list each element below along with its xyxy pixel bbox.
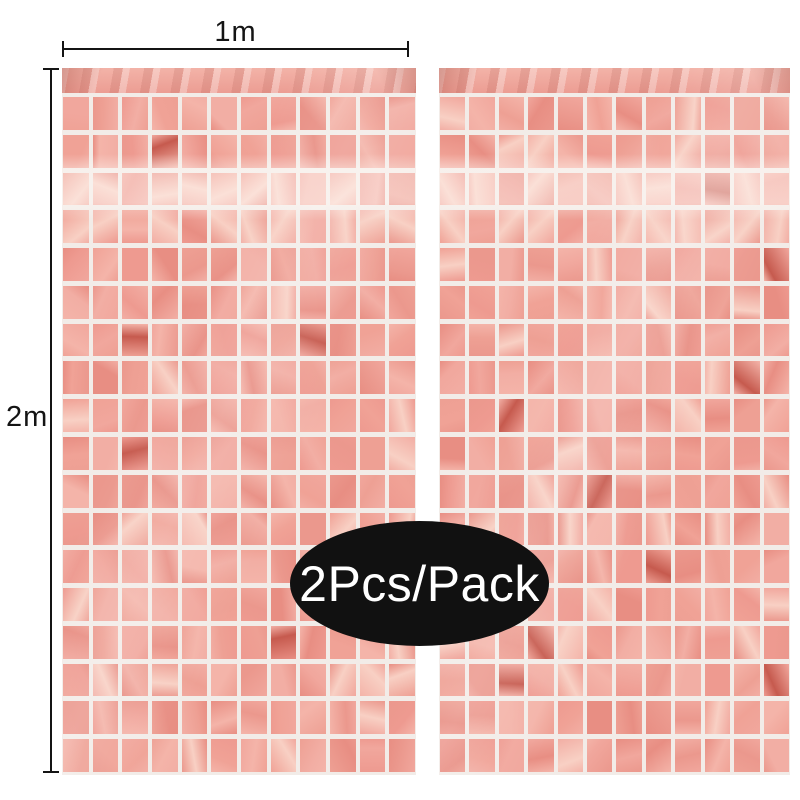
foil-cell	[271, 475, 297, 508]
foil-cell	[152, 664, 178, 697]
foil-cell	[63, 210, 89, 243]
foil-cell	[675, 588, 700, 621]
foil-cell	[440, 248, 465, 281]
foil-cell	[63, 248, 89, 281]
foil-cell	[616, 399, 641, 432]
foil-cell	[122, 97, 148, 130]
foil-cell	[469, 361, 494, 394]
foil-cell	[182, 173, 208, 206]
foil-cell	[389, 475, 415, 508]
foil-cell	[182, 475, 208, 508]
foil-cell	[499, 475, 524, 508]
foil-cell	[646, 475, 671, 508]
foil-cell	[499, 286, 524, 319]
width-dimension-line	[62, 48, 409, 50]
foil-cell	[211, 664, 237, 697]
foil-cell	[764, 437, 789, 470]
foil-cell	[675, 513, 700, 546]
foil-cell	[558, 173, 583, 206]
foil-cell	[764, 399, 789, 432]
foil-cell	[675, 437, 700, 470]
foil-cell	[616, 286, 641, 319]
foil-cell	[469, 324, 494, 357]
foil-cell	[440, 210, 465, 243]
foil-cell	[499, 173, 524, 206]
foil-cell	[469, 135, 494, 168]
foil-cell	[734, 513, 759, 546]
foil-cell	[587, 324, 612, 357]
foil-cell	[211, 173, 237, 206]
foil-cell	[705, 361, 730, 394]
foil-cell	[764, 173, 789, 206]
foil-cell	[616, 324, 641, 357]
foil-cell	[528, 248, 553, 281]
foil-cell	[705, 324, 730, 357]
foil-cell	[764, 513, 789, 546]
foil-cell	[705, 210, 730, 243]
foil-cell	[360, 399, 386, 432]
foil-cell	[499, 664, 524, 697]
foil-cell	[469, 475, 494, 508]
foil-cell	[705, 399, 730, 432]
foil-cell	[499, 701, 524, 734]
foil-cell	[122, 286, 148, 319]
foil-cell	[469, 286, 494, 319]
foil-cell	[528, 626, 553, 659]
foil-cell	[330, 475, 356, 508]
foil-cell	[122, 324, 148, 357]
foil-cell	[764, 475, 789, 508]
foil-cell	[122, 626, 148, 659]
foil-cell	[330, 739, 356, 772]
foil-cell	[271, 248, 297, 281]
foil-cell	[360, 701, 386, 734]
foil-cell	[300, 324, 326, 357]
foil-cell	[646, 513, 671, 546]
foil-cell	[360, 173, 386, 206]
foil-cell	[152, 210, 178, 243]
foil-cell	[440, 701, 465, 734]
foil-cell	[241, 361, 267, 394]
foil-cell	[764, 626, 789, 659]
foil-cell	[558, 210, 583, 243]
foil-cell	[558, 588, 583, 621]
foil-cell	[271, 437, 297, 470]
foil-cell	[705, 135, 730, 168]
foil-cell	[360, 361, 386, 394]
foil-cell	[558, 626, 583, 659]
foil-cell	[558, 135, 583, 168]
foil-cell	[499, 437, 524, 470]
width-dimension-label: 1m	[62, 16, 409, 49]
foil-cell	[360, 210, 386, 243]
foil-cell	[389, 135, 415, 168]
foil-cell	[499, 739, 524, 772]
foil-cell	[616, 475, 641, 508]
foil-cell	[528, 97, 553, 130]
foil-cell	[646, 324, 671, 357]
foil-cell	[330, 97, 356, 130]
foil-cell	[389, 739, 415, 772]
foil-cell	[360, 437, 386, 470]
foil-cell	[764, 248, 789, 281]
foil-cell	[499, 210, 524, 243]
foil-cell	[360, 286, 386, 319]
foil-cell	[152, 475, 178, 508]
foil-cell	[587, 97, 612, 130]
foil-curtain-right	[439, 68, 790, 775]
foil-cell	[63, 475, 89, 508]
foil-cell	[241, 399, 267, 432]
foil-cell	[764, 135, 789, 168]
foil-cell	[587, 664, 612, 697]
foil-cell	[558, 550, 583, 583]
foil-cell	[389, 399, 415, 432]
foil-cell	[734, 664, 759, 697]
foil-cell	[616, 550, 641, 583]
foil-cell	[300, 664, 326, 697]
foil-cell	[705, 739, 730, 772]
foil-cell	[182, 324, 208, 357]
foil-cell	[152, 437, 178, 470]
pack-count-label: 2Pcs/Pack	[299, 555, 540, 613]
foil-cell	[182, 135, 208, 168]
foil-cell	[734, 135, 759, 168]
foil-cell	[271, 513, 297, 546]
foil-cell	[499, 135, 524, 168]
foil-cell	[499, 324, 524, 357]
foil-cell	[469, 701, 494, 734]
foil-cell	[440, 399, 465, 432]
foil-cell	[360, 324, 386, 357]
foil-cell	[675, 475, 700, 508]
foil-cell	[152, 588, 178, 621]
foil-cell	[152, 701, 178, 734]
foil-cell	[211, 97, 237, 130]
foil-cell	[122, 475, 148, 508]
foil-cell	[389, 248, 415, 281]
foil-cell	[764, 210, 789, 243]
foil-cell	[63, 135, 89, 168]
foil-cell	[271, 664, 297, 697]
foil-cell	[646, 361, 671, 394]
foil-cell	[646, 701, 671, 734]
foil-cell	[122, 588, 148, 621]
foil-cell	[300, 97, 326, 130]
foil-cell	[705, 475, 730, 508]
foil-cell	[558, 664, 583, 697]
foil-cell	[241, 664, 267, 697]
foil-cell	[675, 248, 700, 281]
foil-cell	[734, 324, 759, 357]
foil-cell	[587, 550, 612, 583]
foil-cell	[300, 210, 326, 243]
foil-cell	[93, 97, 119, 130]
foil-cell	[93, 248, 119, 281]
foil-cell	[182, 248, 208, 281]
foil-cell	[300, 513, 326, 546]
foil-cell	[330, 286, 356, 319]
foil-cell	[211, 739, 237, 772]
foil-cell	[558, 97, 583, 130]
foil-cell	[93, 286, 119, 319]
foil-cell	[63, 286, 89, 319]
foil-cell	[182, 513, 208, 546]
foil-cell	[558, 286, 583, 319]
foil-cell	[122, 550, 148, 583]
foil-cell	[93, 437, 119, 470]
foil-cell	[241, 513, 267, 546]
foil-cell	[675, 626, 700, 659]
foil-cell	[469, 248, 494, 281]
foil-cell	[63, 626, 89, 659]
foil-cell	[63, 664, 89, 697]
foil-cell	[330, 135, 356, 168]
foil-cell	[675, 324, 700, 357]
foil-cell	[734, 475, 759, 508]
foil-cell	[440, 475, 465, 508]
foil-cell	[152, 626, 178, 659]
foil-cell	[469, 664, 494, 697]
foil-cell	[152, 97, 178, 130]
foil-cell	[528, 739, 553, 772]
foil-cell	[241, 475, 267, 508]
foil-cell	[152, 286, 178, 319]
foil-cell	[528, 701, 553, 734]
foil-cell	[675, 664, 700, 697]
foil-cell	[734, 286, 759, 319]
foil-cell	[330, 210, 356, 243]
foil-cell	[705, 588, 730, 621]
foil-cell	[734, 173, 759, 206]
foil-cell	[705, 97, 730, 130]
foil-cell	[646, 173, 671, 206]
foil-cell	[63, 701, 89, 734]
foil-cell	[152, 248, 178, 281]
foil-cell	[300, 475, 326, 508]
foil-cell	[360, 135, 386, 168]
foil-cell	[764, 739, 789, 772]
foil-cell	[122, 739, 148, 772]
foil-cell	[182, 286, 208, 319]
foil-cell	[646, 739, 671, 772]
foil-cell	[211, 286, 237, 319]
foil-cell	[330, 324, 356, 357]
foil-cell	[389, 324, 415, 357]
foil-cell	[122, 664, 148, 697]
foil-cell	[764, 701, 789, 734]
foil-cell	[646, 399, 671, 432]
foil-cell	[587, 475, 612, 508]
foil-cell	[528, 399, 553, 432]
foil-cell	[152, 550, 178, 583]
foil-cell	[587, 399, 612, 432]
foil-cell	[93, 173, 119, 206]
foil-cell	[587, 361, 612, 394]
foil-cell	[440, 135, 465, 168]
foil-cell	[440, 361, 465, 394]
foil-cell	[271, 626, 297, 659]
foil-cell	[211, 210, 237, 243]
foil-cell	[587, 739, 612, 772]
foil-cell	[182, 739, 208, 772]
foil-cell	[241, 437, 267, 470]
foil-cell	[440, 97, 465, 130]
foil-cell	[152, 513, 178, 546]
foil-cell	[469, 173, 494, 206]
foil-cell	[122, 399, 148, 432]
foil-cell	[211, 513, 237, 546]
foil-cell	[558, 399, 583, 432]
foil-cell	[705, 513, 730, 546]
foil-cell	[63, 324, 89, 357]
foil-cell	[587, 701, 612, 734]
foil-cell	[389, 286, 415, 319]
foil-cell	[734, 399, 759, 432]
foil-cell	[764, 361, 789, 394]
foil-cell	[182, 399, 208, 432]
foil-cell	[241, 135, 267, 168]
foil-cell	[528, 210, 553, 243]
foil-cell	[764, 664, 789, 697]
foil-cell	[646, 550, 671, 583]
foil-cell	[389, 701, 415, 734]
foil-cell	[360, 664, 386, 697]
foil-cell	[122, 173, 148, 206]
foil-cell	[528, 475, 553, 508]
foil-cell	[587, 173, 612, 206]
foil-cell	[93, 135, 119, 168]
foil-cell	[587, 588, 612, 621]
foil-cell	[440, 437, 465, 470]
curtain-top-fold	[439, 68, 790, 93]
foil-cell	[300, 739, 326, 772]
foil-cell	[616, 588, 641, 621]
foil-cell	[764, 324, 789, 357]
foil-cell	[300, 135, 326, 168]
foil-cell	[63, 399, 89, 432]
foil-cell	[440, 739, 465, 772]
foil-cell	[241, 173, 267, 206]
foil-cell	[271, 210, 297, 243]
foil-cell	[734, 361, 759, 394]
foil-cell	[440, 664, 465, 697]
foil-cell	[734, 588, 759, 621]
foil-cell	[211, 399, 237, 432]
foil-cell	[182, 97, 208, 130]
foil-cell	[122, 513, 148, 546]
foil-cell	[122, 437, 148, 470]
foil-cell	[182, 437, 208, 470]
foil-cell	[646, 210, 671, 243]
foil-cell	[499, 248, 524, 281]
foil-cell	[300, 173, 326, 206]
foil-cell	[616, 97, 641, 130]
foil-cell	[646, 437, 671, 470]
foil-cell	[241, 210, 267, 243]
foil-cell	[93, 513, 119, 546]
foil-cell	[211, 475, 237, 508]
foil-cell	[469, 739, 494, 772]
foil-cell	[528, 324, 553, 357]
foil-cell	[528, 173, 553, 206]
height-dimension-line	[50, 68, 52, 773]
foil-cell	[440, 286, 465, 319]
foil-cell	[241, 626, 267, 659]
foil-cell	[764, 97, 789, 130]
foil-cell	[587, 210, 612, 243]
foil-cell	[675, 210, 700, 243]
foil-cell	[182, 210, 208, 243]
foil-cell	[469, 210, 494, 243]
foil-cell	[558, 361, 583, 394]
foil-cell	[616, 248, 641, 281]
foil-cell	[241, 739, 267, 772]
foil-cell	[646, 286, 671, 319]
foil-cell	[587, 135, 612, 168]
foil-cell	[499, 399, 524, 432]
foil-cell	[211, 361, 237, 394]
foil-cell	[122, 135, 148, 168]
foil-cell	[734, 97, 759, 130]
foil-cell	[211, 588, 237, 621]
foil-cell	[300, 437, 326, 470]
foil-cell	[93, 475, 119, 508]
foil-cell	[587, 513, 612, 546]
foil-cell	[616, 210, 641, 243]
foil-cell	[705, 437, 730, 470]
foil-cell	[271, 399, 297, 432]
foil-cell	[152, 324, 178, 357]
pack-count-badge: 2Pcs/Pack	[290, 521, 549, 646]
foil-cell	[182, 550, 208, 583]
foil-cell	[528, 361, 553, 394]
foil-cell	[705, 701, 730, 734]
foil-cell	[241, 588, 267, 621]
foil-cell	[764, 550, 789, 583]
foil-cell	[271, 135, 297, 168]
foil-cell	[389, 97, 415, 130]
foil-cell	[528, 437, 553, 470]
foil-cell	[63, 739, 89, 772]
foil-cell	[182, 701, 208, 734]
foil-cell	[646, 248, 671, 281]
foil-cell	[93, 701, 119, 734]
foil-cell	[152, 399, 178, 432]
foil-cell	[616, 513, 641, 546]
foil-cell	[675, 135, 700, 168]
foil-cell	[63, 437, 89, 470]
foil-cell	[63, 550, 89, 583]
foil-cell	[330, 664, 356, 697]
foil-cell	[93, 324, 119, 357]
foil-cell	[616, 173, 641, 206]
foil-cell	[675, 173, 700, 206]
foil-cell	[211, 550, 237, 583]
foil-cell	[646, 664, 671, 697]
foil-cell	[440, 173, 465, 206]
foil-cell	[558, 739, 583, 772]
foil-cell	[271, 324, 297, 357]
foil-cell	[764, 286, 789, 319]
foil-cell	[734, 550, 759, 583]
foil-cell	[734, 248, 759, 281]
foil-cell	[211, 626, 237, 659]
foil-cell	[241, 324, 267, 357]
foil-cell	[587, 248, 612, 281]
foil-cell	[63, 173, 89, 206]
foil-cell	[300, 626, 326, 659]
